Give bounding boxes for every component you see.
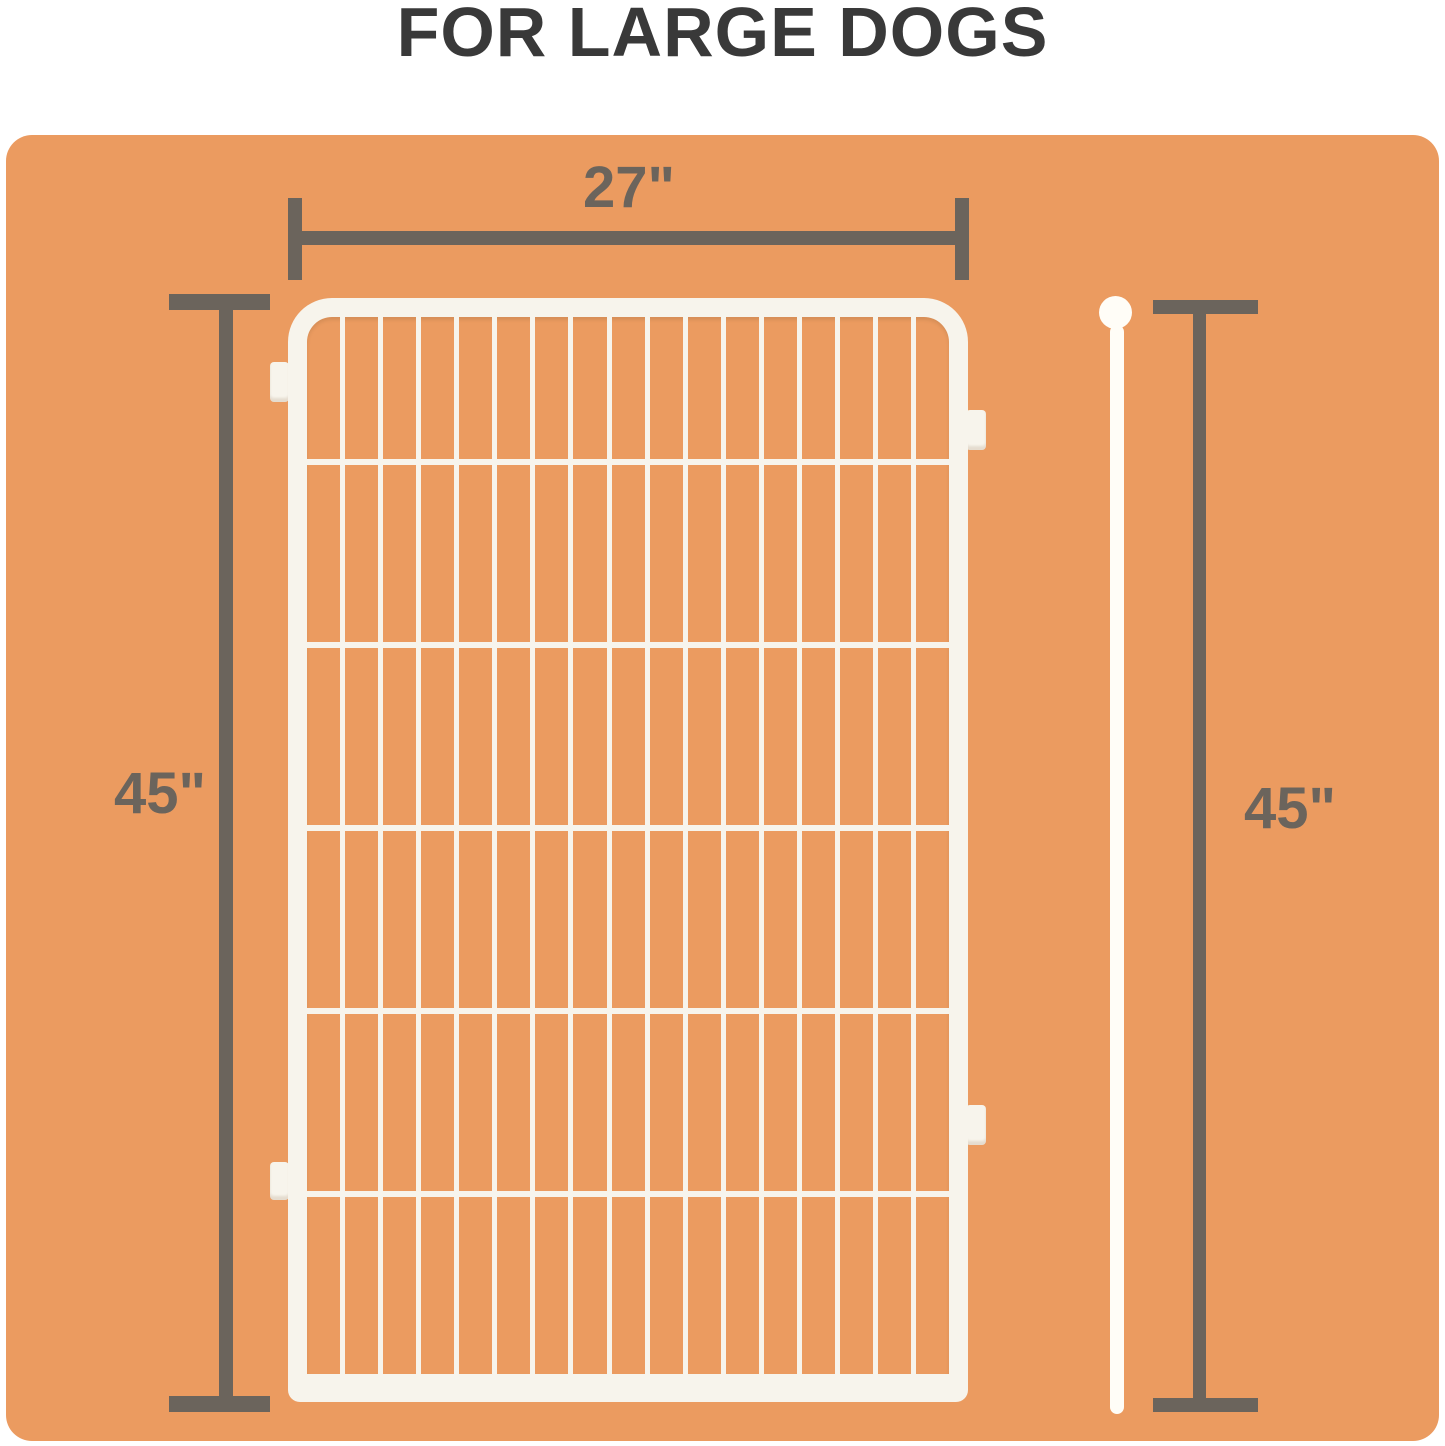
fence-wire-column [568,317,606,1374]
page-title: FOR LARGE DOGS [0,0,1445,72]
fence-wire-column [416,317,454,1374]
orange-background-panel: 27" 45" 45" [6,135,1439,1441]
fence-wire-column [607,317,645,1374]
width-dimension-right-cap [955,198,969,280]
left-height-line [219,302,233,1404]
fence-wire-column [911,317,949,1374]
fence-wire-column [378,317,416,1374]
fence-wire-column [530,317,568,1374]
fence-wire-column [721,317,759,1374]
fence-wire-column [454,317,492,1374]
fence-wire-column [340,317,378,1374]
fence-wire-column [645,317,683,1374]
fence-wire-column [873,317,911,1374]
connector-tab-left-top [270,362,289,402]
fence-wire-column [492,317,530,1374]
width-dimension-line [296,231,962,245]
fence-wire-column [307,317,340,1374]
fence-wire-column [759,317,797,1374]
left-height-bottom-cap [169,1396,270,1412]
fence-wire-column [835,317,873,1374]
stake-pole [1110,325,1124,1414]
right-height-bottom-cap [1153,1398,1258,1412]
fence-mesh-columns [307,317,949,1374]
connector-tab-left-bottom [270,1162,289,1200]
fence-frame [288,298,968,1402]
fence-wire-column [797,317,835,1374]
left-height-label: 45" [90,765,230,823]
right-height-label: 45" [1220,780,1360,838]
connector-tab-right-bottom [966,1105,986,1145]
right-height-line [1193,307,1206,1405]
width-dimension-label: 27" [296,159,962,217]
fence-wire-column [683,317,721,1374]
connector-tab-right-top [966,410,986,450]
fence-mesh [307,317,949,1374]
